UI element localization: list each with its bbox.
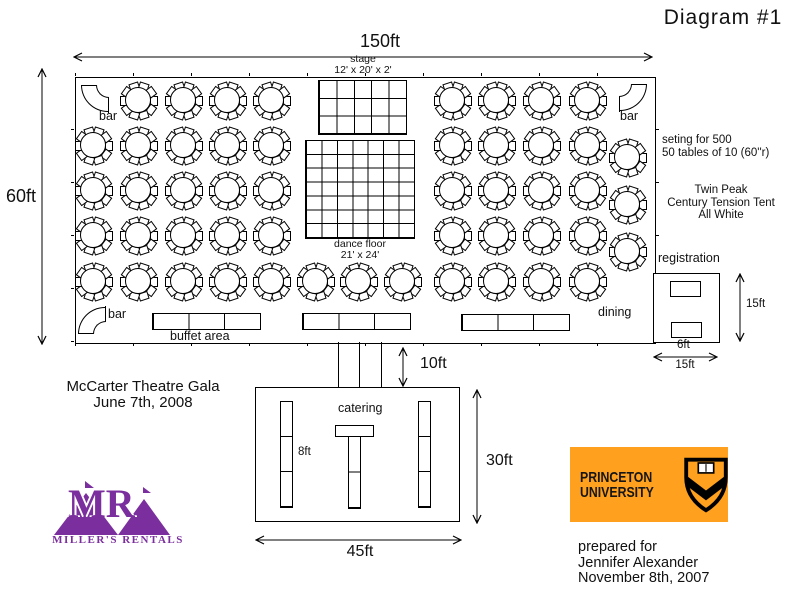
table-top — [528, 222, 554, 248]
guest-table-round-10 — [522, 126, 560, 164]
tent-spec-line2: Century Tension Tent — [656, 197, 786, 210]
tent-height-dimension: 60ft — [2, 186, 40, 207]
table-top — [214, 222, 240, 248]
diagram-title: Diagram #1 — [656, 6, 790, 30]
guest-table-round-10 — [568, 81, 606, 119]
guest-table-round-10 — [477, 171, 515, 209]
guest-table-round-10 — [208, 81, 246, 119]
guest-table-round-10 — [74, 216, 112, 254]
seating-notes: seting for 500 50 tables of 10 (60''r) — [662, 134, 769, 160]
table-top — [80, 132, 106, 158]
guest-table-round-10 — [568, 216, 606, 254]
guest-table-round-10 — [208, 171, 246, 209]
corridor-walkway — [338, 342, 382, 388]
prepared-for-line1: prepared for — [578, 540, 709, 556]
guest-table-round-10 — [477, 216, 515, 254]
catering-table-left — [280, 401, 293, 508]
catering-height-dimension: 30ft — [486, 452, 513, 470]
guest-table-round-10 — [608, 232, 646, 270]
guest-table-round-10 — [522, 216, 560, 254]
tent-spec-line3: All White — [656, 209, 786, 222]
guest-table-round-10 — [568, 126, 606, 164]
bar-label-top-left: bar — [99, 109, 117, 123]
millers-name: MILLER'S RENTALS — [52, 534, 184, 546]
table-top — [528, 268, 554, 294]
table-top — [389, 268, 415, 294]
bar-counter-top-right — [619, 84, 647, 112]
princeton-line1: PRINCETON — [580, 470, 654, 485]
guest-table-round-10 — [608, 185, 646, 223]
table-top — [170, 268, 196, 294]
table-top — [483, 87, 509, 113]
table-top — [528, 177, 554, 203]
table-top — [574, 87, 600, 113]
guest-table-round-10 — [252, 171, 290, 209]
guest-table-round-10 — [522, 262, 560, 300]
table-top — [80, 268, 106, 294]
guest-table-round-10 — [339, 262, 377, 300]
buffet-area-label: buffet area — [170, 329, 230, 343]
table-top — [614, 191, 640, 217]
event-title-block: McCarter Theatre Gala June 7th, 2008 — [36, 379, 250, 411]
millers-flag-right-icon — [143, 484, 151, 493]
guest-table-round-10 — [296, 262, 334, 300]
guest-table-round-10 — [433, 81, 471, 119]
table-top — [125, 87, 151, 113]
table-top — [125, 222, 151, 248]
table-top — [574, 132, 600, 158]
table-top — [258, 87, 284, 113]
guest-table-round-10 — [164, 126, 202, 164]
dance-floor — [305, 140, 415, 239]
seating-note-line1: seting for 500 — [662, 134, 769, 147]
catering-label: catering — [338, 401, 382, 415]
dining-label: dining — [598, 305, 631, 319]
table-top — [574, 177, 600, 203]
seating-note-line2: 50 tables of 10 (60''r) — [662, 147, 769, 160]
table-top — [439, 222, 465, 248]
table-top — [574, 268, 600, 294]
event-date: June 7th, 2008 — [36, 395, 250, 411]
guest-table-round-10 — [74, 262, 112, 300]
table-top — [258, 177, 284, 203]
guest-table-round-10 — [477, 126, 515, 164]
table-top — [125, 132, 151, 158]
table-top — [439, 268, 465, 294]
guest-table-round-10 — [433, 216, 471, 254]
guest-table-round-10 — [608, 138, 646, 176]
event-name: McCarter Theatre Gala — [36, 379, 250, 395]
guest-table-round-10 — [252, 126, 290, 164]
table-top — [170, 222, 196, 248]
stage — [318, 80, 407, 135]
floor-plan-diagram: Diagram #1 stage 12' x 20' x 2' dance fl… — [0, 0, 794, 600]
table-top — [483, 222, 509, 248]
tent-spec-notes: Twin Peak Century Tension Tent All White — [656, 184, 786, 222]
guest-table-round-10 — [568, 262, 606, 300]
registration-height-dimension: 15ft — [746, 298, 765, 310]
corridor-dimension: 10ft — [420, 355, 447, 373]
bar-label-top-right: bar — [620, 109, 638, 123]
tent-spec-line1: Twin Peak — [656, 184, 786, 197]
registration-width-dimension: 15ft — [664, 359, 706, 371]
guest-table-round-10 — [433, 126, 471, 164]
table-top — [214, 87, 240, 113]
guest-table-round-10 — [208, 262, 246, 300]
guest-table-round-10 — [119, 216, 157, 254]
stage-size-label: 12' x 20' x 2' — [318, 64, 408, 76]
prepared-for-block: prepared for Jennifer Alexander November… — [578, 540, 709, 587]
table-top — [528, 132, 554, 158]
table-top — [614, 238, 640, 264]
registration-table-1 — [670, 281, 701, 297]
catering-table-t-stem — [348, 436, 361, 509]
table-top — [170, 87, 196, 113]
table-top — [574, 222, 600, 248]
table-top — [258, 222, 284, 248]
table-top — [614, 144, 640, 170]
dance-floor-size-label: 21' x 24' — [326, 249, 394, 261]
catering-table-right — [418, 401, 431, 508]
table-top — [439, 177, 465, 203]
table-top — [439, 87, 465, 113]
registration-depth-dimension: 6ft — [677, 339, 690, 351]
table-top — [483, 268, 509, 294]
guest-table-round-10 — [252, 81, 290, 119]
guest-table-round-10 — [433, 171, 471, 209]
guest-table-round-10 — [119, 81, 157, 119]
registration-label: registration — [658, 251, 720, 265]
tent-pole-ticks-left — [71, 77, 74, 342]
table-top — [80, 222, 106, 248]
guest-table-round-10 — [568, 171, 606, 209]
millers-rentals-logo: MR MILLER'S RENTALS — [52, 476, 184, 548]
guest-table-round-10 — [119, 171, 157, 209]
guest-table-round-10 — [252, 262, 290, 300]
prepared-for-line3: November 8th, 2007 — [578, 571, 709, 587]
princeton-university-logo: PRINCETON UNIVERSITY — [570, 447, 728, 522]
catering-table-length-label: 8ft — [298, 446, 311, 458]
princeton-shield-icon — [684, 457, 728, 513]
buffet-table-left — [152, 313, 261, 330]
table-top — [214, 177, 240, 203]
guest-table-round-10 — [119, 262, 157, 300]
guest-table-round-10 — [433, 262, 471, 300]
table-top — [483, 132, 509, 158]
prepared-for-line2: Jennifer Alexander — [578, 556, 709, 572]
guest-table-round-10 — [74, 126, 112, 164]
bar-label-bottom-left: bar — [108, 307, 126, 321]
guest-table-round-10 — [522, 81, 560, 119]
table-top — [439, 132, 465, 158]
buffet-table-right — [461, 314, 570, 331]
table-top — [125, 177, 151, 203]
guest-table-round-10 — [74, 171, 112, 209]
table-top — [170, 132, 196, 158]
catering-width-dimension: 45ft — [325, 543, 395, 561]
buffet-table-middle — [302, 313, 411, 330]
table-top — [214, 268, 240, 294]
guest-table-round-10 — [164, 171, 202, 209]
princeton-line2: UNIVERSITY — [580, 485, 654, 500]
table-top — [125, 268, 151, 294]
table-top — [483, 177, 509, 203]
table-top — [345, 268, 371, 294]
guest-table-round-10 — [477, 81, 515, 119]
table-top — [214, 132, 240, 158]
table-top — [170, 177, 196, 203]
table-top — [258, 268, 284, 294]
table-top — [302, 268, 328, 294]
table-top — [80, 177, 106, 203]
guest-table-round-10 — [477, 262, 515, 300]
guest-table-round-10 — [252, 216, 290, 254]
table-top — [528, 87, 554, 113]
guest-table-round-10 — [119, 126, 157, 164]
princeton-logo-text: PRINCETON UNIVERSITY — [580, 470, 654, 500]
guest-table-round-10 — [522, 171, 560, 209]
tent-width-dimension: 150ft — [330, 31, 430, 52]
registration-table-2 — [671, 322, 702, 338]
guest-table-round-10 — [164, 262, 202, 300]
guest-table-round-10 — [383, 262, 421, 300]
guest-table-round-10 — [208, 126, 246, 164]
bar-counter-bottom-left — [78, 306, 106, 334]
table-top — [258, 132, 284, 158]
guest-table-round-10 — [164, 216, 202, 254]
millers-monogram: MR — [68, 484, 135, 524]
guest-table-round-10 — [208, 216, 246, 254]
guest-table-round-10 — [164, 81, 202, 119]
